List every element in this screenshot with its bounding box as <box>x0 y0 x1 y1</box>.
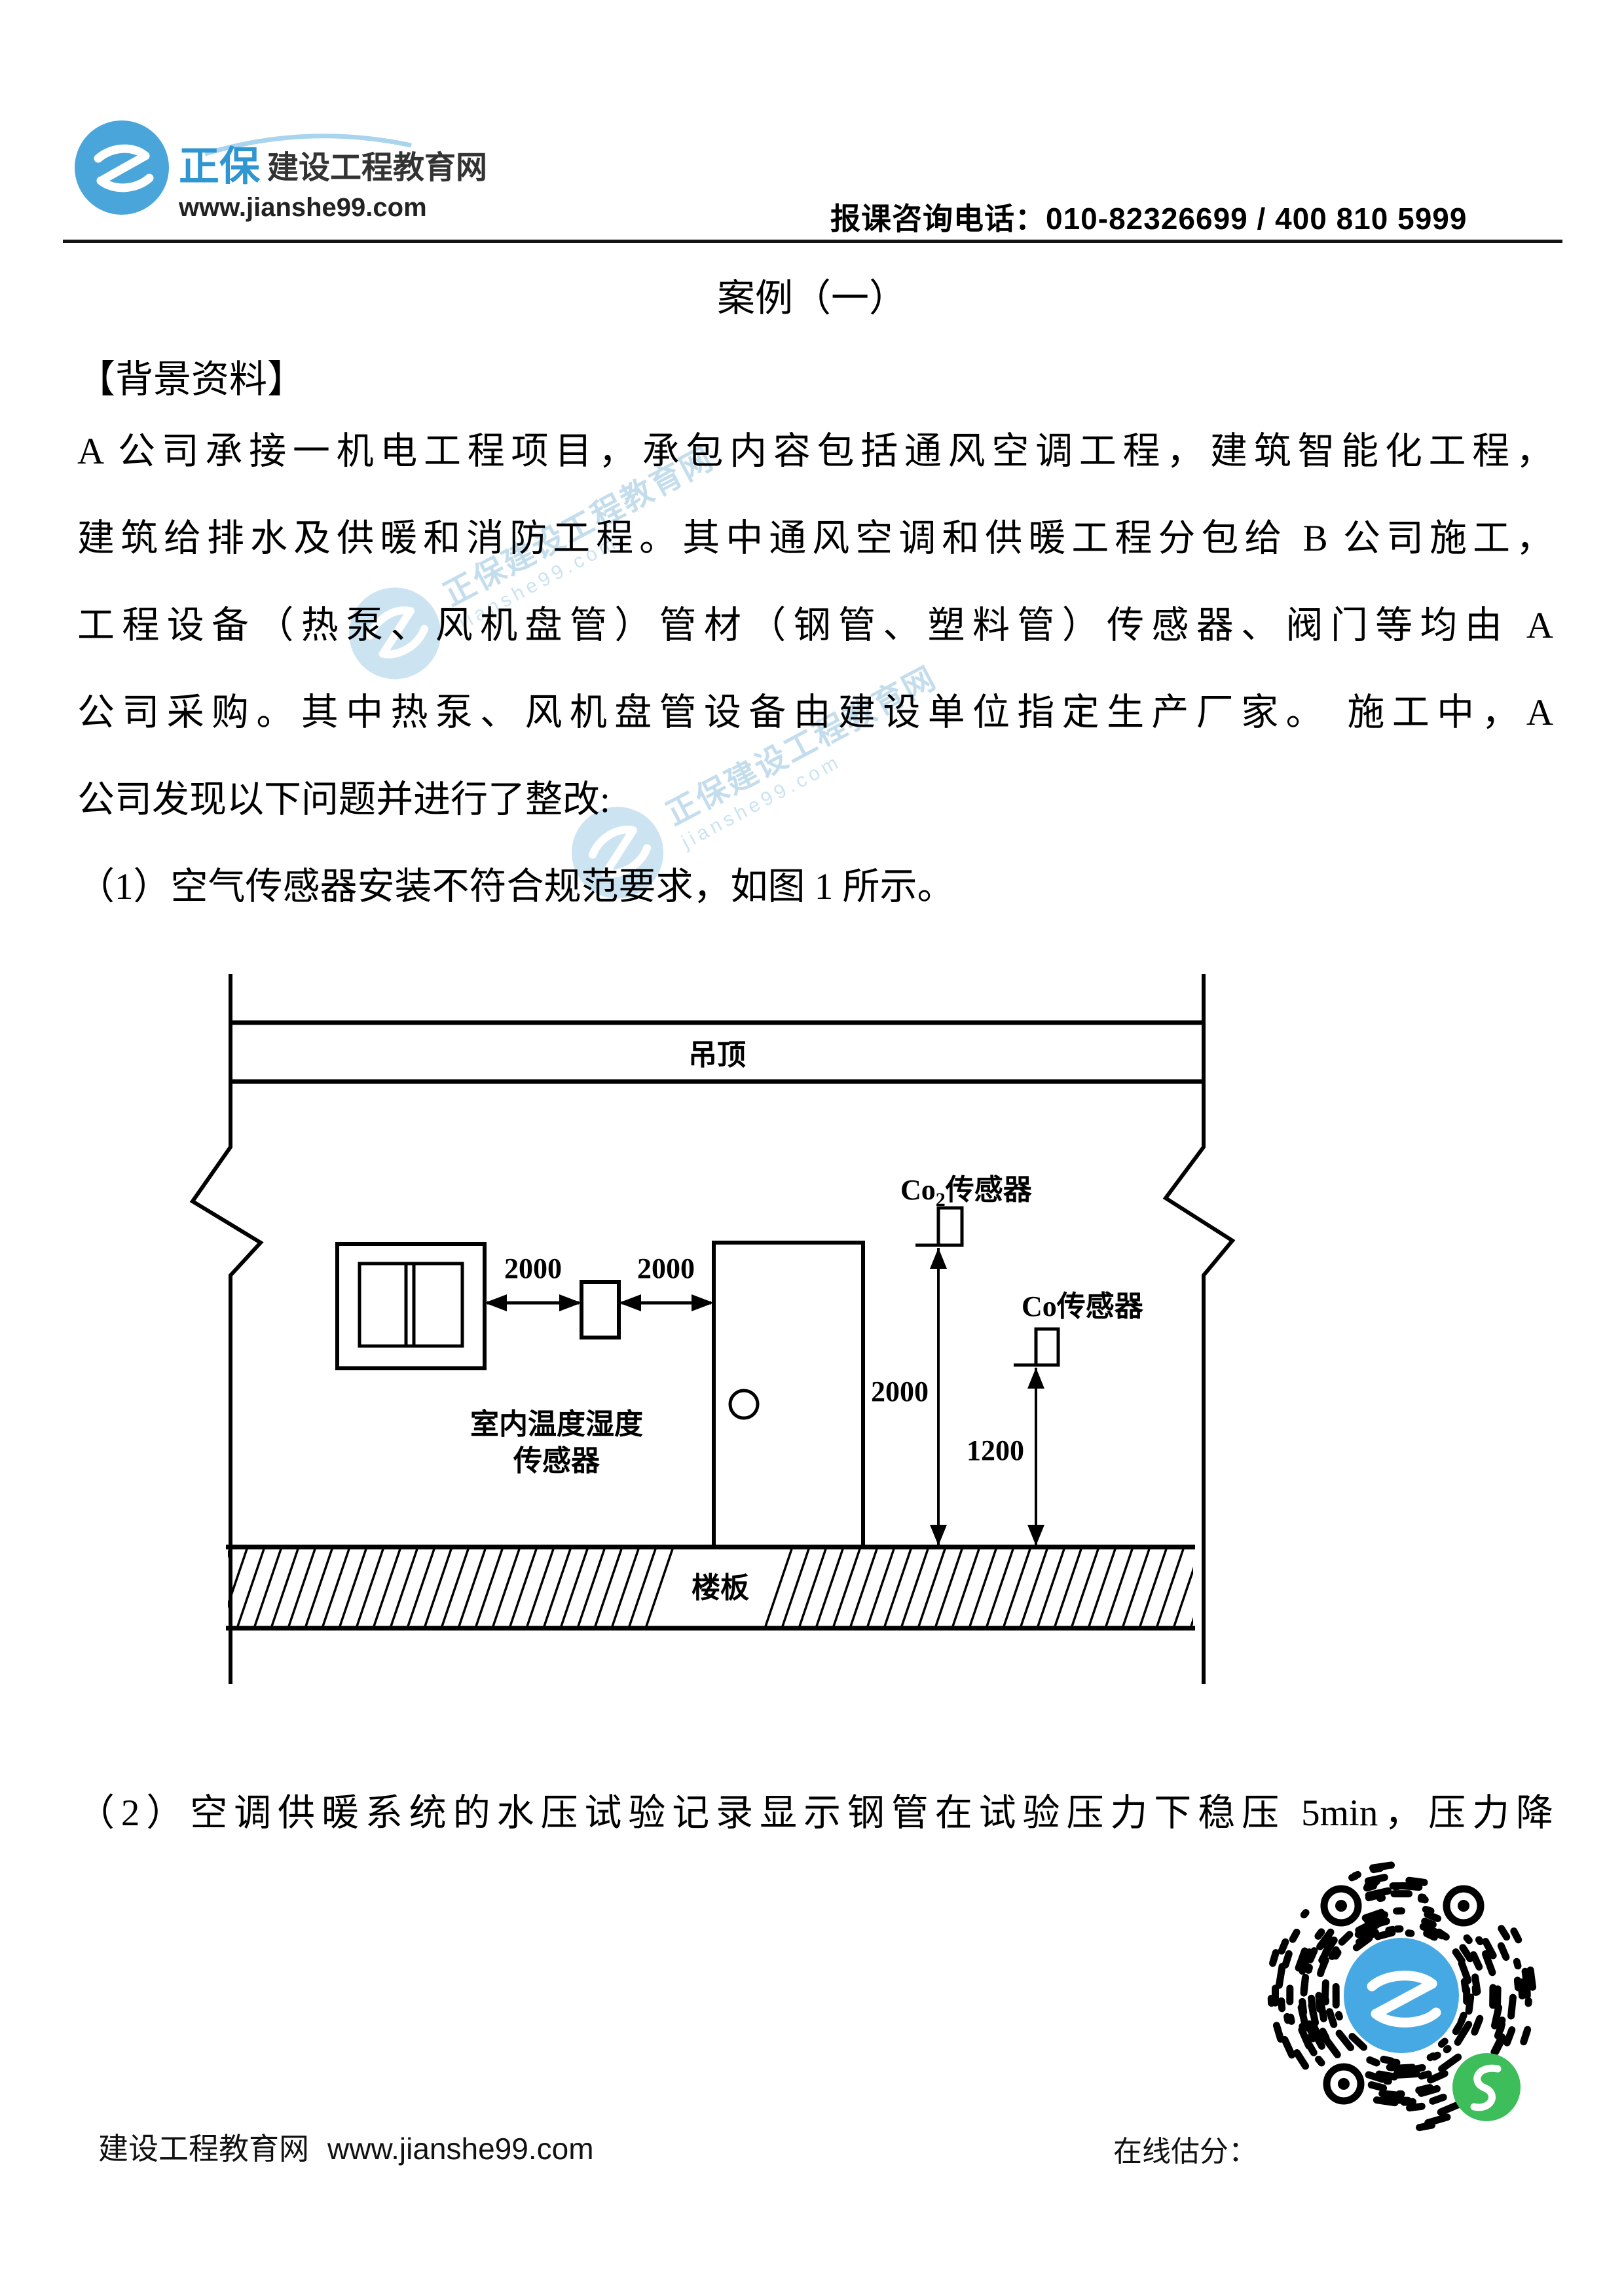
online-score-label: 在线估分： <box>1113 2128 1257 2170</box>
consult-phone-line: 报课咨询电话：010-82326699 / 400 810 5999 <box>830 195 1467 238</box>
ceiling-label: 吊顶 <box>688 1039 746 1071</box>
dimension-text-right: 2000 <box>637 1252 695 1285</box>
temp-humidity-sensor-symbol <box>337 1244 485 1368</box>
door-symbol <box>714 1243 863 1547</box>
page-title: 案例（一） <box>0 267 1624 322</box>
co2-dimension-line <box>930 1248 947 1546</box>
left-wall <box>193 974 261 1628</box>
paragraph-line: 工程设备（热泵、风机盘管）管材（钢管、塑料管）传感器、阀门等均由 A <box>77 604 1553 648</box>
paragraph-line: （1）空气传感器安装不符合规范要求，如图 1 所示。 <box>77 865 1553 909</box>
header-divider <box>63 240 1562 243</box>
co-sensor-label: Co传感器 <box>1022 1290 1144 1322</box>
qr-miniprogram-icon <box>1452 2053 1521 2121</box>
paragraph-line: 建筑给排水及供暖和消防工程。其中通风空调和供暖工程分包给 B 公司施工， <box>77 517 1553 561</box>
document-page: 正保建设工程教育网 jianshe99.com 正保建设工程教育网 jiansh… <box>0 0 1624 2296</box>
paragraph-line: （2）空调供暖系统的水压试验记录显示钢管在试验压力下稳压 5min，压力降 <box>77 1791 1553 1836</box>
dimension-text-left: 2000 <box>504 1252 562 1285</box>
door-knob-icon <box>730 1391 758 1418</box>
zhengbao-logo-icon <box>75 120 169 215</box>
qr-center-logo-icon <box>1344 1938 1459 2053</box>
paragraph-line: 公司采购。其中热泵、风机盘管设备由建设单位指定生产厂家。 施工中，A <box>77 691 1553 735</box>
paragraph-line: 公司发现以下问题并进行了整改: <box>77 778 1553 822</box>
floor-label: 楼板 <box>692 1572 749 1604</box>
wall-sensor-symbol <box>581 1282 619 1338</box>
temp-humidity-sensor-label-line1: 室内温度湿度 <box>470 1408 643 1440</box>
site-logo: 正保 建设工程教育网 www.jianshe99.com <box>71 118 529 223</box>
co2-sensor-symbol <box>915 1208 963 1245</box>
qr-code <box>1261 1858 1568 2166</box>
brand-suffix: 建设工程教育网 <box>267 151 487 185</box>
paragraph-line: A 公司承接一机电工程项目，承包内容包括通风空调工程，建筑智能化工程， <box>77 429 1553 474</box>
co2-sensor-label: Co2传感器 <box>900 1174 1033 1211</box>
brand-url: www.jianshe99.com <box>178 193 427 222</box>
section-heading: 【背景资料】 <box>77 348 305 403</box>
co-dimension-text: 1200 <box>967 1434 1024 1467</box>
co2-dimension-text: 2000 <box>871 1376 929 1408</box>
temp-humidity-sensor-label-line2: 传感器 <box>513 1445 600 1477</box>
right-wall <box>1166 974 1232 1628</box>
footer-site-url: www.jianshe99.com <box>327 2132 594 2166</box>
footer-site-info: 建设工程教育网www.jianshe99.com <box>98 2125 612 2168</box>
dimension-arrow-right <box>619 1294 714 1311</box>
dimension-arrow-left <box>485 1294 581 1311</box>
co-sensor-symbol <box>1014 1329 1060 1365</box>
figure-sensor-installation: 吊顶 室内温度湿度 传感器 2000 2000 <box>183 943 1244 1692</box>
footer-site-name: 建设工程教育网 <box>98 2132 309 2166</box>
co-dimension-line <box>1027 1368 1044 1546</box>
brand-name-cn: 正保 <box>179 144 261 189</box>
